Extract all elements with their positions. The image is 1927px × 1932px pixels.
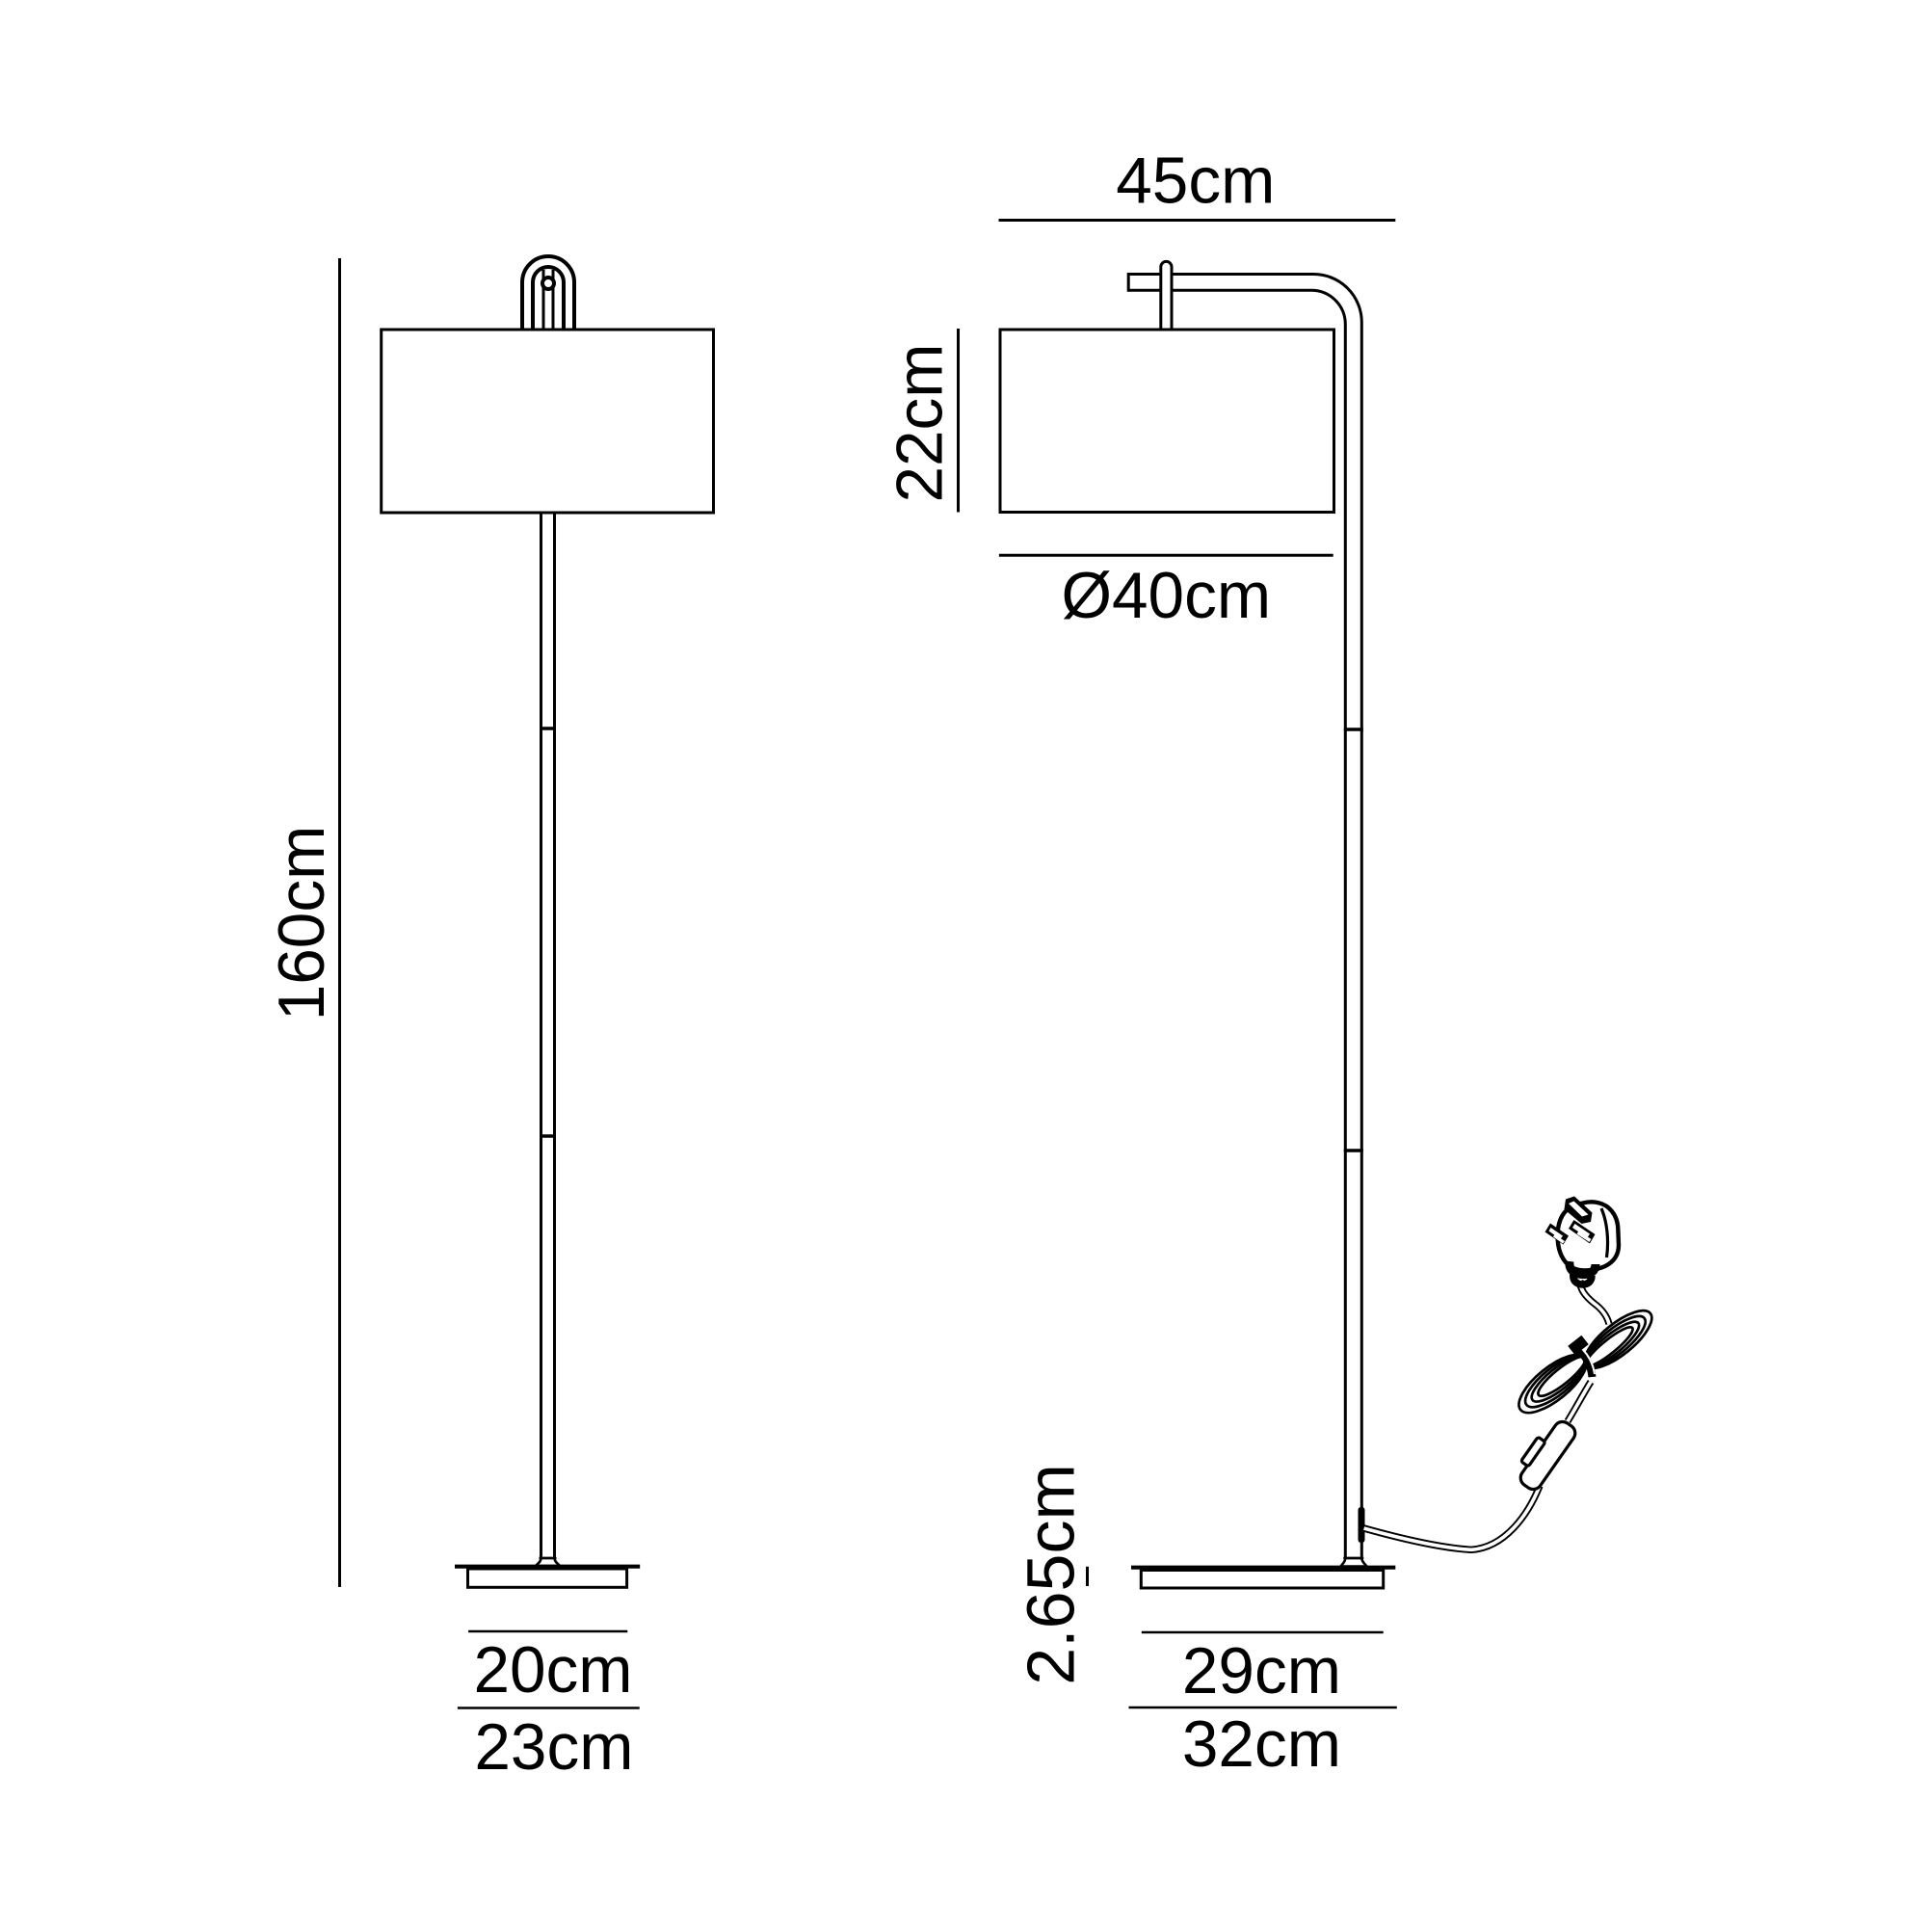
svg-text:23cm: 23cm (474, 1711, 633, 1784)
svg-text:Ø40cm: Ø40cm (1062, 560, 1272, 632)
svg-text:32cm: 32cm (1182, 1708, 1341, 1781)
svg-text:22cm: 22cm (884, 343, 957, 502)
svg-text:160cm: 160cm (266, 826, 338, 1021)
svg-text:45cm: 45cm (1116, 146, 1275, 218)
svg-text:2.65cm: 2.65cm (1014, 1464, 1089, 1685)
svg-text:20cm: 20cm (473, 1634, 632, 1707)
svg-text:29cm: 29cm (1182, 1635, 1341, 1707)
